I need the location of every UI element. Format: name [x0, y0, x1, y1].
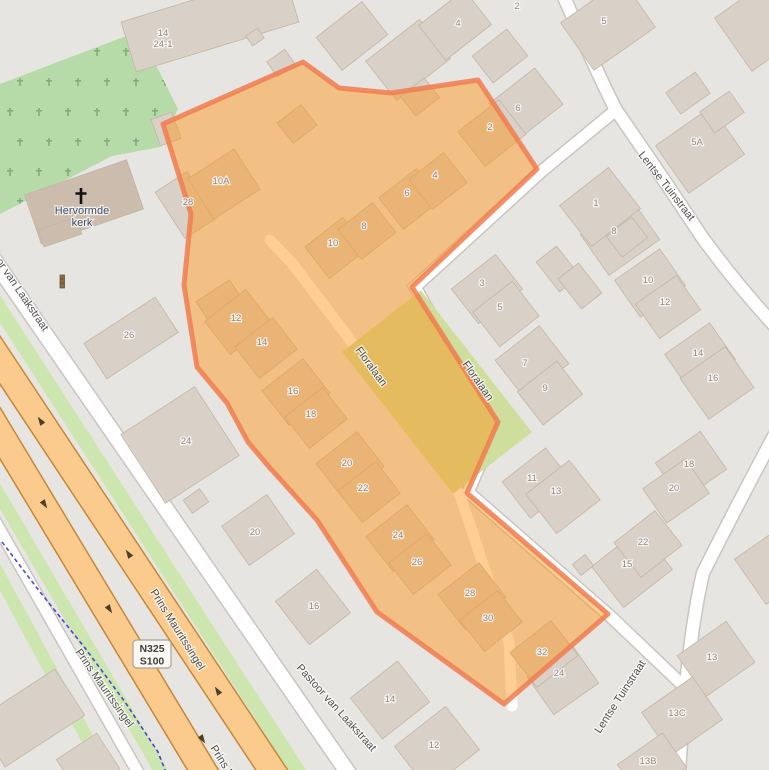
house-number: 30 — [483, 613, 494, 624]
house-number: 10 — [643, 275, 654, 286]
house-number: 24 — [393, 530, 404, 541]
house-number: 28 — [183, 197, 194, 208]
house-number: 13 — [707, 652, 718, 663]
house-number: 2 — [487, 122, 492, 133]
house-number: 24-1 — [153, 39, 172, 50]
map-svg: Hervormdekerk1424-142655A181012141635792… — [0, 0, 769, 770]
house-number: 2 — [514, 1, 519, 12]
house-number: 16 — [309, 601, 320, 612]
house-number: 13C — [668, 708, 686, 719]
road-ref-badge-text: N325 — [139, 643, 164, 655]
house-number: 20 — [342, 458, 353, 469]
church-label: Hervormde — [55, 205, 109, 217]
house-number: 3 — [479, 278, 484, 289]
house-number: 20 — [669, 483, 680, 494]
house-number: 20 — [250, 527, 261, 538]
house-number: 15 — [622, 559, 633, 570]
house-number: 5 — [497, 302, 502, 313]
house-number: 1 — [593, 198, 598, 209]
house-number: 5 — [601, 16, 606, 27]
house-number: 6 — [515, 103, 520, 114]
house-number: 5A — [691, 137, 703, 148]
house-number: 24 — [554, 668, 565, 679]
house-number: 4 — [455, 18, 460, 29]
house-number: 16 — [288, 386, 299, 397]
house-number: 26 — [124, 330, 135, 341]
house-number: 18 — [684, 459, 695, 470]
house-number: 24 — [181, 436, 192, 447]
house-number: 6 — [404, 188, 409, 199]
church-label: kerk — [72, 217, 93, 229]
house-number: 22 — [638, 537, 649, 548]
house-number: 9 — [542, 383, 547, 394]
house-number: 12 — [231, 313, 242, 324]
house-number: 14 — [158, 28, 169, 39]
house-number: 16 — [708, 373, 719, 384]
house-number: 8 — [611, 226, 616, 237]
house-number: 10A — [213, 176, 231, 187]
house-number: 13B — [640, 756, 657, 767]
house-number: 8 — [361, 221, 366, 232]
road-ref-badge-text: S100 — [140, 656, 165, 668]
map-canvas[interactable]: Hervormdekerk1424-142655A181012141635792… — [0, 0, 769, 770]
house-number: 18 — [306, 409, 317, 420]
house-number: 13 — [551, 486, 562, 497]
house-number: 4 — [432, 170, 437, 181]
house-number: 14 — [693, 348, 704, 359]
house-number: 26 — [412, 557, 423, 568]
monument-icon — [60, 275, 65, 288]
house-number: 22 — [358, 483, 369, 494]
house-number: 12 — [660, 297, 671, 308]
house-number: 28 — [465, 588, 476, 599]
house-number: 10 — [328, 238, 339, 249]
house-number: 7 — [522, 358, 527, 369]
house-number: 12 — [429, 740, 440, 751]
house-number: 32 — [537, 647, 548, 658]
house-number: 14 — [385, 694, 396, 705]
house-number: 11 — [527, 473, 537, 484]
house-number: 14 — [257, 337, 268, 348]
